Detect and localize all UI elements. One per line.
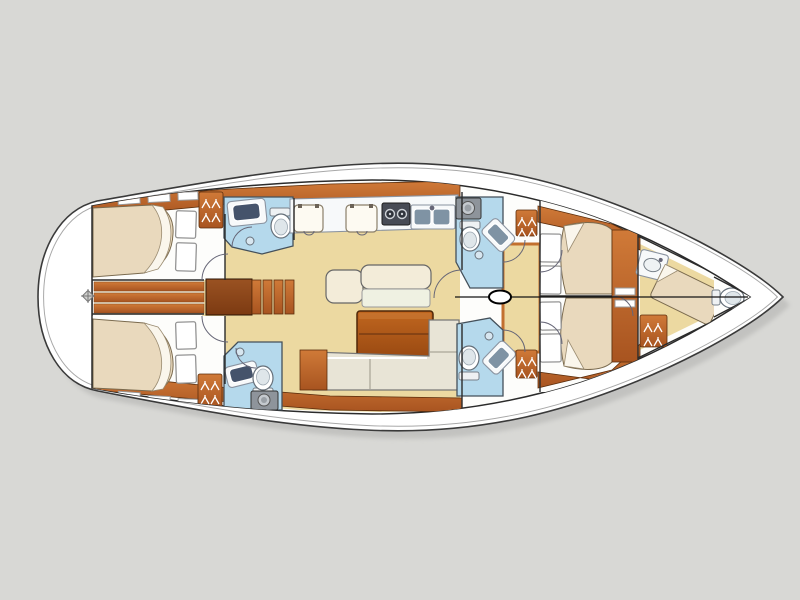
cool-box-lid (346, 204, 377, 235)
appliance (456, 198, 481, 219)
shower-icon (475, 251, 483, 259)
double-sink (411, 205, 455, 229)
pillow (540, 334, 561, 362)
pillow (540, 302, 561, 330)
aft-head-starboard (224, 342, 282, 410)
pillow (540, 234, 561, 262)
toilet (270, 208, 291, 238)
settee-seat (362, 289, 430, 307)
wardrobe (199, 192, 223, 228)
shower-icon (246, 237, 254, 245)
toilet (460, 221, 480, 251)
wardrobe (198, 374, 222, 408)
settee-backrest (361, 265, 431, 289)
cool-box-lid (294, 204, 323, 235)
pillow (540, 266, 561, 294)
yacht-floor-plan (0, 0, 800, 600)
floor-plan-canvas (0, 0, 800, 600)
companionway-steps (206, 279, 294, 315)
mast-icon (489, 291, 511, 304)
aft-corridor (94, 281, 204, 315)
stove (382, 203, 410, 225)
pillow (176, 322, 197, 350)
saloon-table (357, 311, 433, 357)
galley (290, 195, 458, 235)
forward-cabin-starboard (540, 298, 612, 369)
pillow (176, 211, 197, 239)
pillow (176, 243, 197, 272)
forward-wardrobe-starboard (516, 350, 537, 378)
seat (326, 270, 363, 303)
aft-head-port (224, 197, 293, 254)
saloon-cabinet (300, 350, 327, 390)
appliance (251, 391, 278, 410)
forward-wardrobe-port (516, 210, 537, 237)
wardrobe (640, 315, 667, 347)
pillow (176, 355, 197, 384)
washbasin (227, 198, 267, 227)
shower-icon (485, 332, 493, 340)
